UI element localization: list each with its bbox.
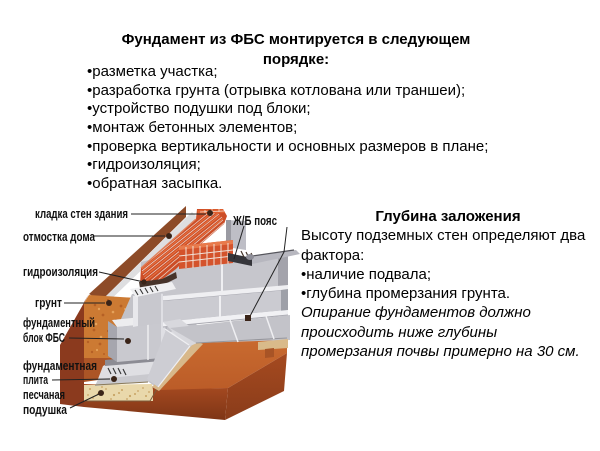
- svg-text:отмостка дома: отмостка дома: [23, 229, 96, 244]
- svg-text:грунт: грунт: [35, 295, 62, 310]
- svg-text:Ж/Б пояс: Ж/Б пояс: [232, 213, 277, 228]
- svg-text:блок ФБС: блок ФБС: [23, 330, 65, 345]
- svg-text:кладка стен здания: кладка стен здания: [35, 206, 128, 221]
- svg-text:песчаная: песчаная: [23, 387, 65, 402]
- svg-text:подушка: подушка: [23, 402, 68, 417]
- svg-text:фундаментная: фундаментная: [23, 358, 97, 373]
- svg-text:плита: плита: [23, 372, 49, 387]
- svg-text:гидроизоляция: гидроизоляция: [23, 264, 98, 279]
- svg-text:фундаментный: фундаментный: [23, 315, 95, 330]
